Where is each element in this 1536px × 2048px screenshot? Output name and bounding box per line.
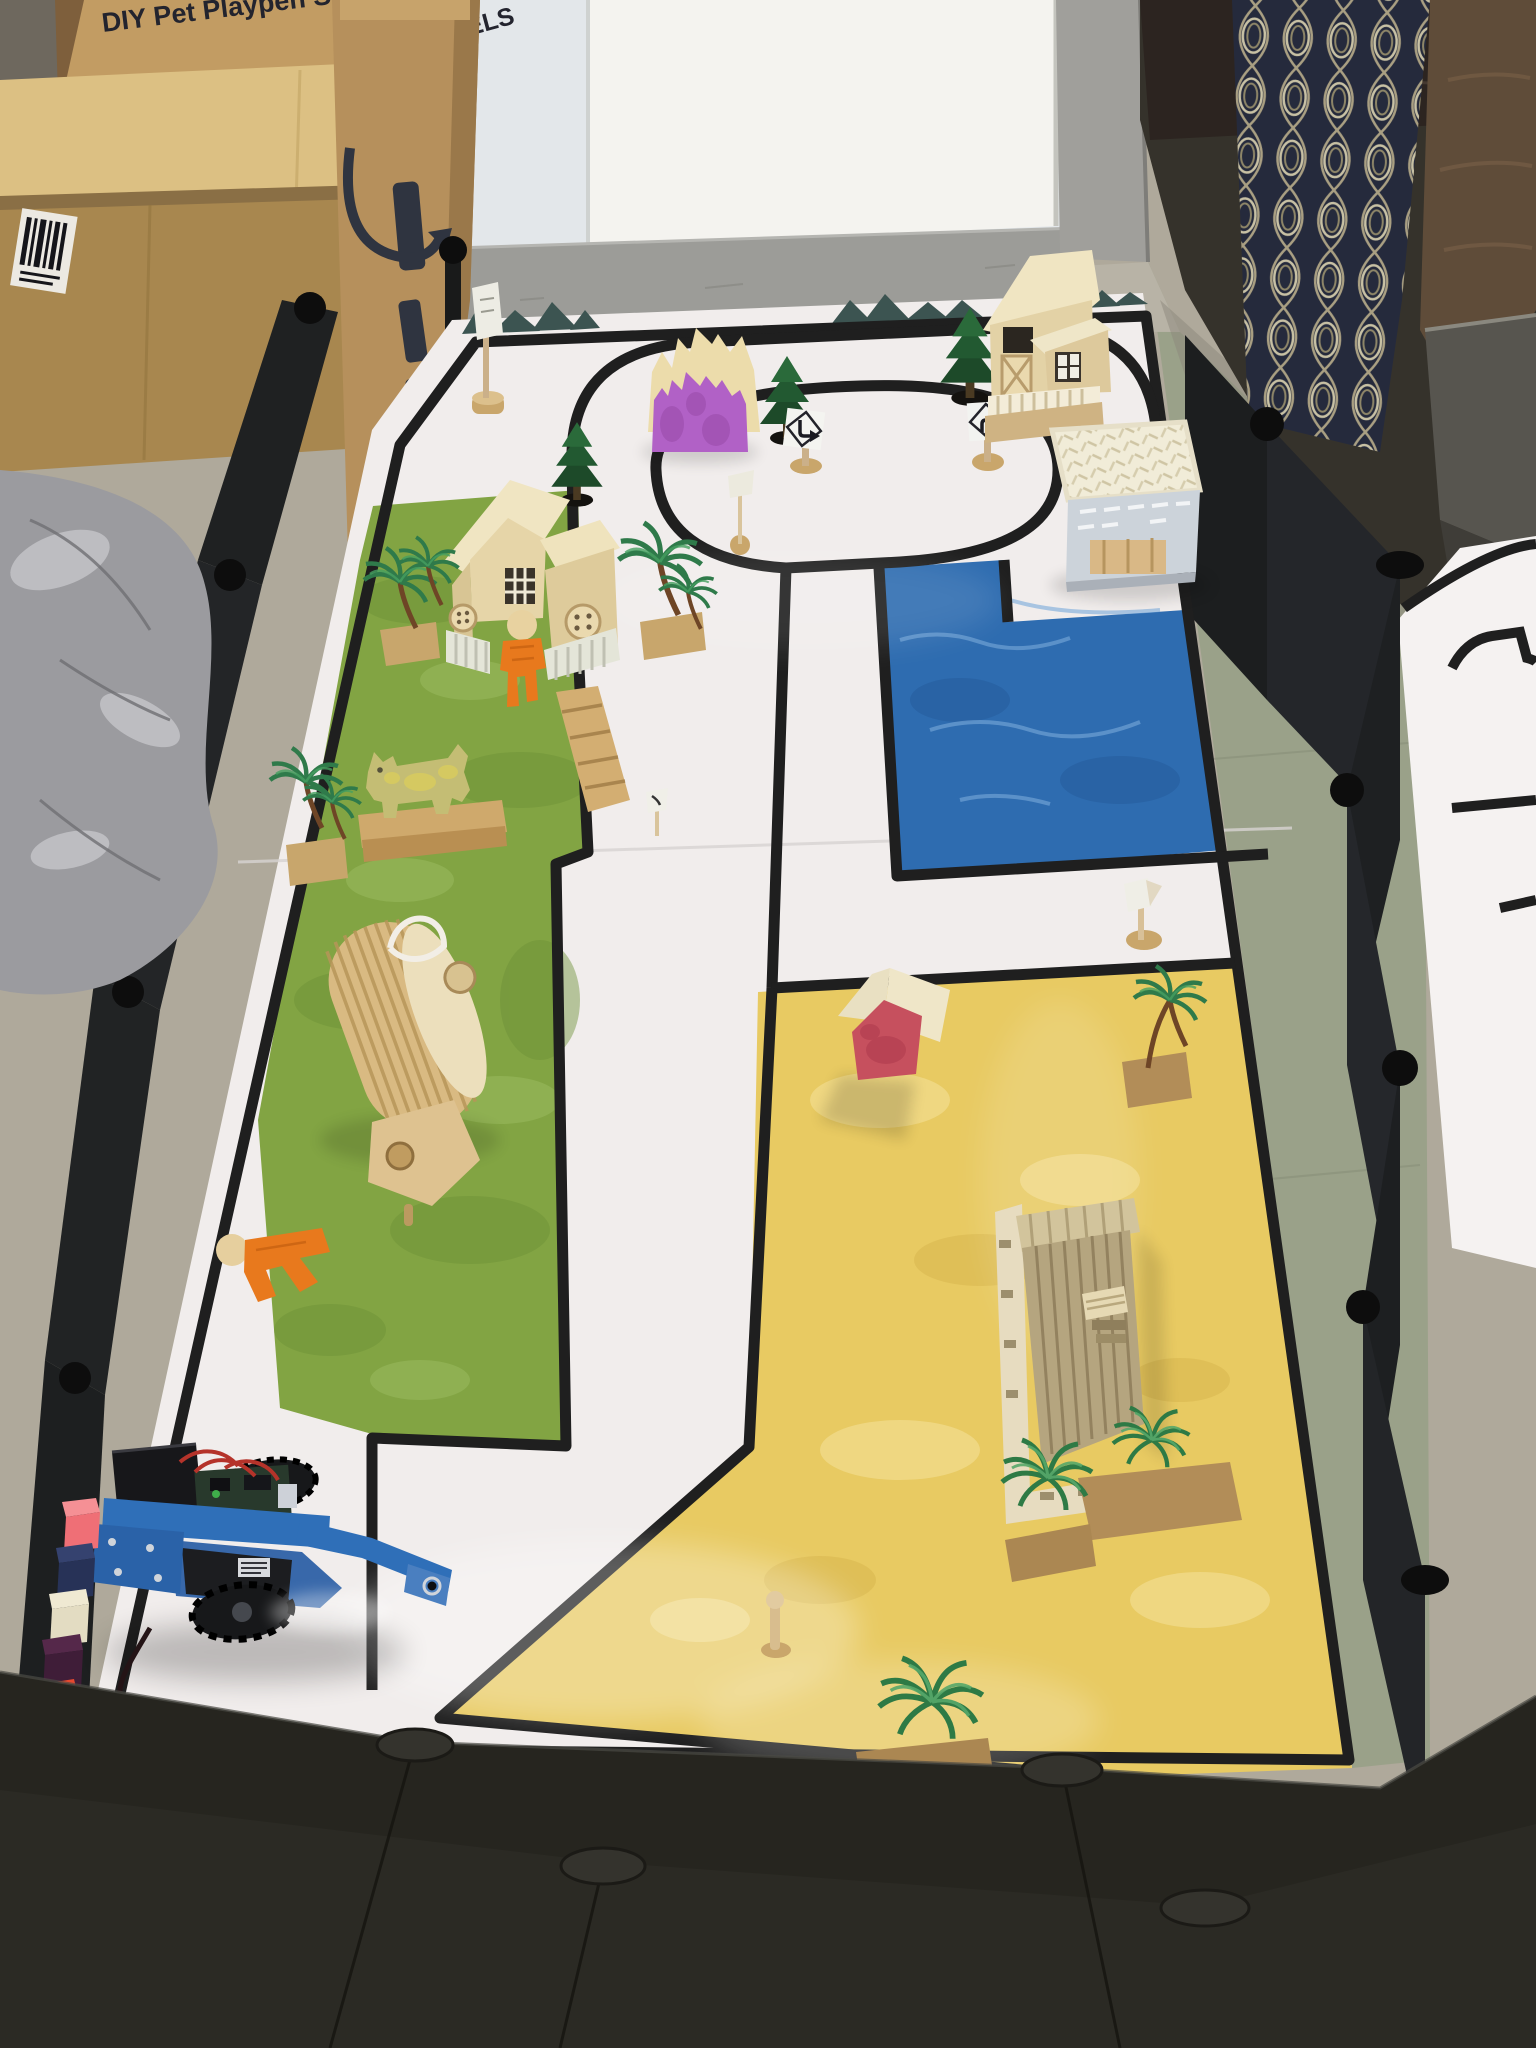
palm-base: [286, 837, 348, 886]
block-pink: [62, 1498, 100, 1552]
crate-top: [1052, 422, 1200, 500]
arm-hole: [428, 1582, 437, 1591]
figure-head: [507, 610, 537, 640]
lattice-crate: [1050, 422, 1210, 601]
button-window-left: [450, 605, 476, 631]
cardboard-base: [1122, 1052, 1192, 1108]
wheel-hub: [232, 1602, 252, 1622]
leaning-white-board: [588, 0, 1056, 248]
house-door: [1002, 356, 1031, 396]
lattice-window: [505, 568, 535, 604]
figure-head: [216, 1234, 248, 1266]
photo-of-robot-play-mat-arena: DIY Pet Playpen Set 24 PANELS: [0, 0, 1536, 2048]
dog-eye: [377, 767, 383, 773]
led: [212, 1490, 220, 1498]
robot-front-plate: [92, 1524, 184, 1594]
annex-window: [1055, 352, 1081, 382]
base-peg: [387, 1143, 413, 1169]
silver-bag: [0, 470, 218, 994]
house-dark-window: [1003, 327, 1033, 353]
gray-pillar: [1056, 0, 1148, 262]
button-window-right: [566, 605, 600, 639]
box-tape: [340, 0, 470, 20]
